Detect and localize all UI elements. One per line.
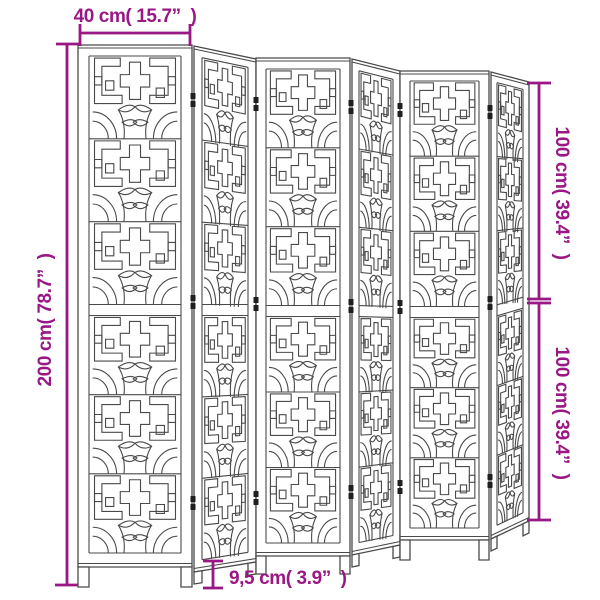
dimension-upper-half: 100 cm( 39.4” ) (527, 83, 572, 299)
dimension-width: 40 cm( 15.7” ) (74, 6, 197, 46)
panel-leg (181, 567, 192, 587)
panel-leg (393, 545, 400, 558)
panel-2 (194, 46, 256, 584)
dimension-height: 200 cm( 78.7” ) (35, 44, 79, 585)
panel-face (194, 46, 256, 572)
panel-leg (479, 540, 489, 560)
panel-leg (194, 571, 202, 584)
panel-leg (78, 567, 89, 587)
dimension-upper-half-label: 100 cm( 39.4” ) (551, 126, 572, 259)
panel-4 (352, 59, 400, 567)
diagram-stage: 40 cm( 15.7” ) 200 cm( 78.7” ) 100 cm( 3… (0, 0, 600, 600)
room-divider-illustration (78, 45, 529, 587)
dimension-legs-label: 9,5 cm( 3.9” ) (229, 568, 347, 589)
dimension-height-label: 200 cm( 78.7” ) (35, 253, 56, 386)
panel-leg (400, 540, 410, 560)
panel-leg (352, 554, 359, 567)
panel-3 (256, 58, 350, 574)
dimension-width-label: 40 cm( 15.7” ) (74, 6, 197, 27)
dimension-lower-half: 100 cm( 39.4” ) (527, 303, 572, 520)
room-divider-diagram: 40 cm( 15.7” ) 200 cm( 78.7” ) 100 cm( 3… (0, 0, 600, 600)
panel-5 (400, 71, 489, 560)
panel-1 (78, 45, 192, 587)
panel-leg (523, 521, 529, 536)
panel-6 (491, 72, 529, 551)
dimension-lower-half-label: 100 cm( 39.4” ) (551, 346, 572, 479)
panel-leg (491, 536, 497, 551)
panel-face (400, 71, 489, 540)
